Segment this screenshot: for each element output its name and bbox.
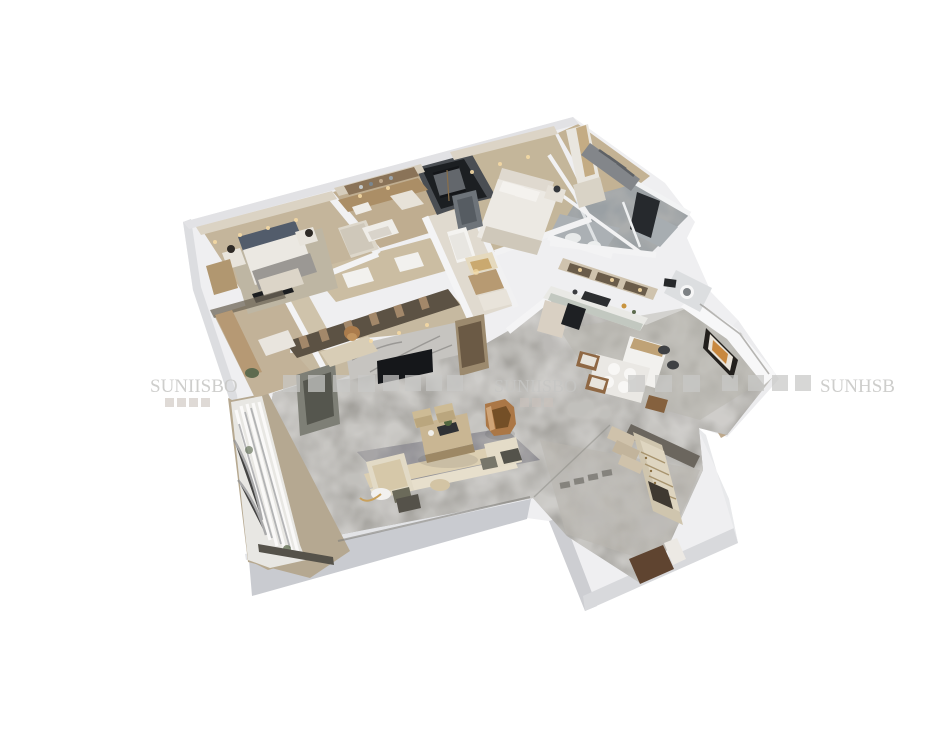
svg-text:SUNHSB: SUNHSB bbox=[820, 376, 895, 397]
svg-text:SUNIISBO: SUNIISBO bbox=[150, 376, 238, 397]
svg-text:SUNIISBO: SUNIISBO bbox=[494, 376, 577, 396]
